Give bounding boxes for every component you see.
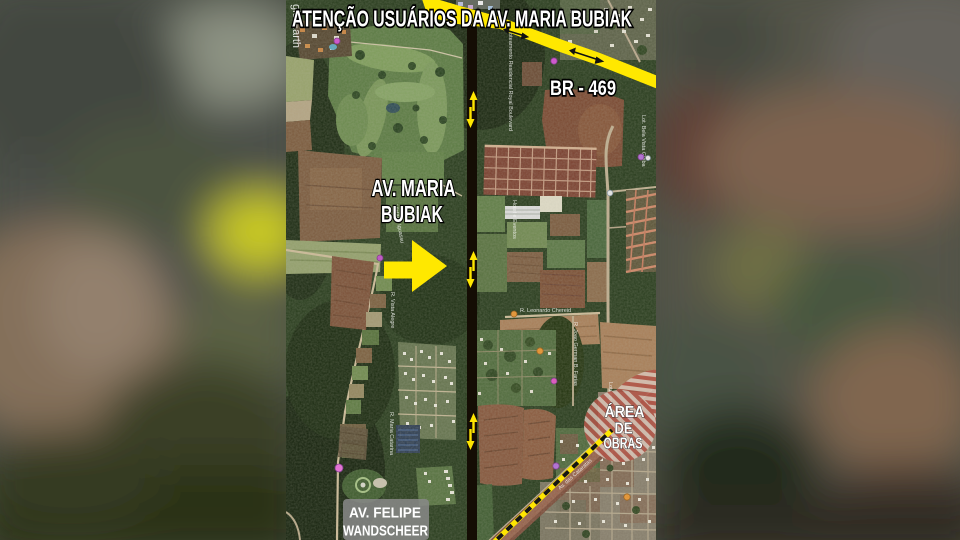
svg-text:WANDSCHEER: WANDSCHEER bbox=[343, 523, 428, 540]
svg-text:AV. FELIPE: AV. FELIPE bbox=[349, 505, 421, 522]
svg-text:AV. MARIA: AV. MARIA bbox=[372, 175, 456, 201]
svg-text:BUBIAK: BUBIAK bbox=[381, 201, 443, 227]
svg-text:ÁREA: ÁREA bbox=[605, 404, 645, 421]
svg-text:BR - 469: BR - 469 bbox=[550, 77, 616, 100]
svg-text:ATENÇÃO USUÁRIOS DA AV. MARIA: ATENÇÃO USUÁRIOS DA AV. MARIA BUBIAK bbox=[292, 5, 632, 32]
svg-text:OBRAS: OBRAS bbox=[604, 436, 643, 453]
